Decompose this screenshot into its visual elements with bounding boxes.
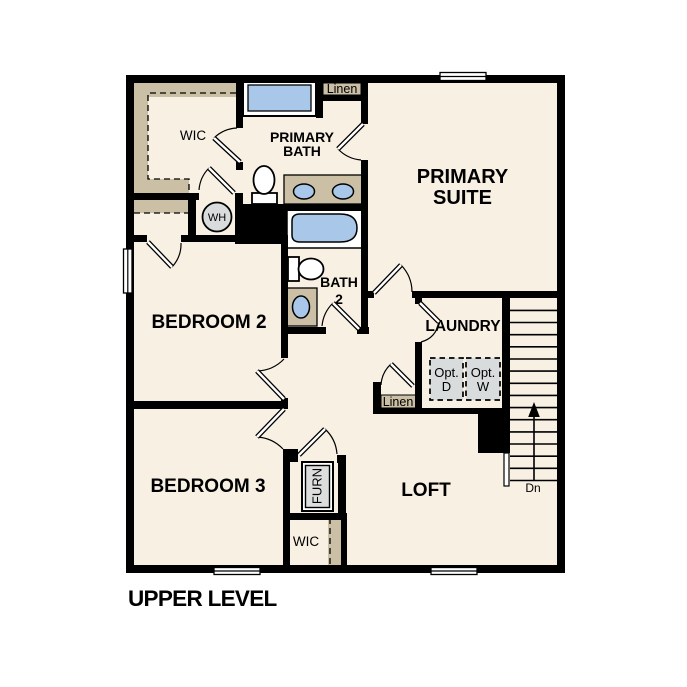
svg-text:Linen: Linen [327, 82, 358, 96]
svg-text:Opt.: Opt. [471, 365, 496, 380]
svg-text:BATH: BATH [283, 143, 321, 159]
svg-text:Dn: Dn [525, 481, 540, 495]
svg-text:BATH: BATH [320, 274, 358, 290]
svg-text:WIC: WIC [293, 534, 319, 549]
svg-text:Opt.: Opt. [434, 365, 459, 380]
svg-text:Linen: Linen [383, 395, 414, 409]
svg-text:W: W [477, 379, 490, 394]
svg-text:PRIMARY: PRIMARY [417, 166, 509, 188]
svg-text:BEDROOM 2: BEDROOM 2 [151, 312, 266, 333]
svg-text:FURN: FURN [309, 468, 324, 504]
svg-text:SUITE: SUITE [433, 187, 492, 209]
svg-text:WIC: WIC [180, 128, 206, 143]
svg-text:LOFT: LOFT [401, 480, 451, 501]
svg-text:BEDROOM 3: BEDROOM 3 [150, 476, 265, 497]
svg-text:UPPER LEVEL: UPPER LEVEL [128, 586, 278, 611]
svg-text:WH: WH [208, 212, 226, 224]
svg-text:D: D [442, 379, 451, 394]
